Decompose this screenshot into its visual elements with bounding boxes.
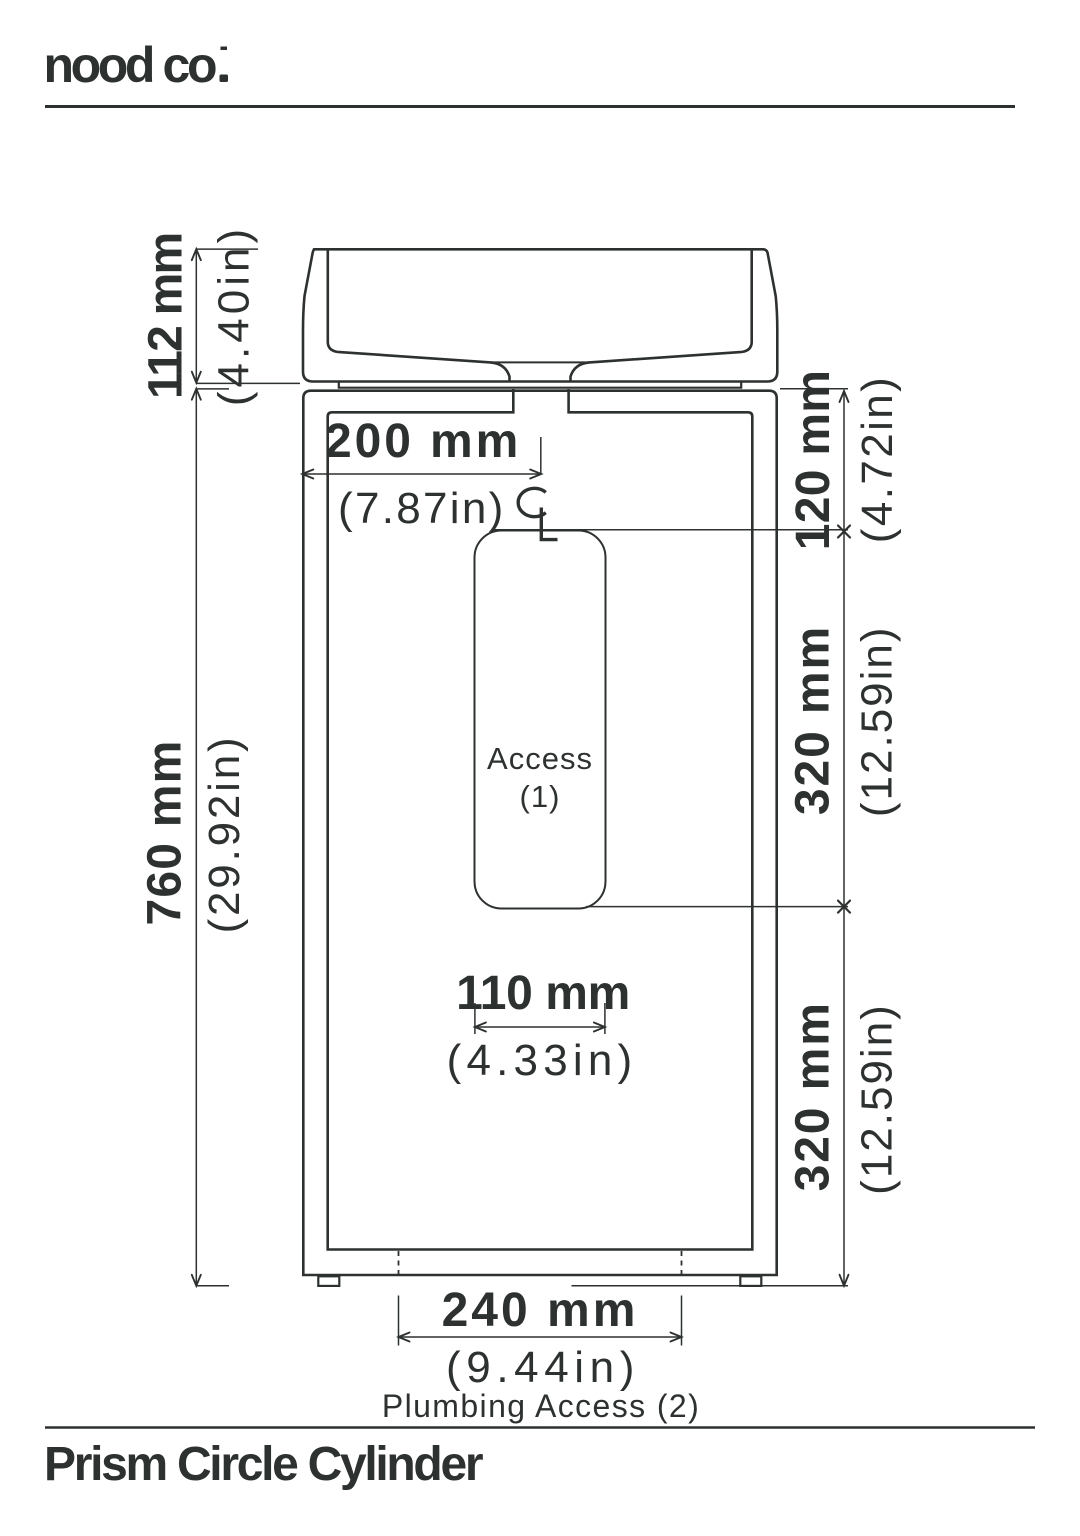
- svg-text:110 mm: 110 mm: [456, 967, 630, 1020]
- svg-text:320 mm: 320 mm: [787, 625, 840, 815]
- svg-text:(4.72in): (4.72in): [853, 375, 902, 543]
- svg-text:240 mm: 240 mm: [442, 1284, 639, 1337]
- svg-text:(12.59in): (12.59in): [852, 625, 901, 817]
- svg-text:Access: Access: [487, 741, 593, 776]
- svg-text:(4.33in): (4.33in): [447, 1036, 638, 1085]
- svg-text:200 mm: 200 mm: [325, 415, 521, 468]
- svg-text:(7.87in): (7.87in): [338, 484, 506, 533]
- svg-text:112 mm: 112 mm: [140, 234, 193, 399]
- svg-text:(12.59in): (12.59in): [852, 1003, 901, 1195]
- svg-text:320 mm: 320 mm: [787, 1001, 840, 1191]
- svg-text:760 mm: 760 mm: [139, 740, 192, 926]
- svg-text:(4.40in): (4.40in): [209, 225, 258, 406]
- svg-text:nood co: nood co: [44, 37, 216, 93]
- svg-text:120 mm: 120 mm: [787, 370, 840, 551]
- svg-text:Prism Circle Cylinder: Prism Circle Cylinder: [44, 1438, 483, 1491]
- svg-text:(1): (1): [520, 779, 561, 814]
- svg-text:(9.44in): (9.44in): [446, 1343, 640, 1392]
- svg-text:Plumbing Access (2): Plumbing Access (2): [382, 1388, 700, 1424]
- svg-text:(29.92in): (29.92in): [200, 735, 249, 934]
